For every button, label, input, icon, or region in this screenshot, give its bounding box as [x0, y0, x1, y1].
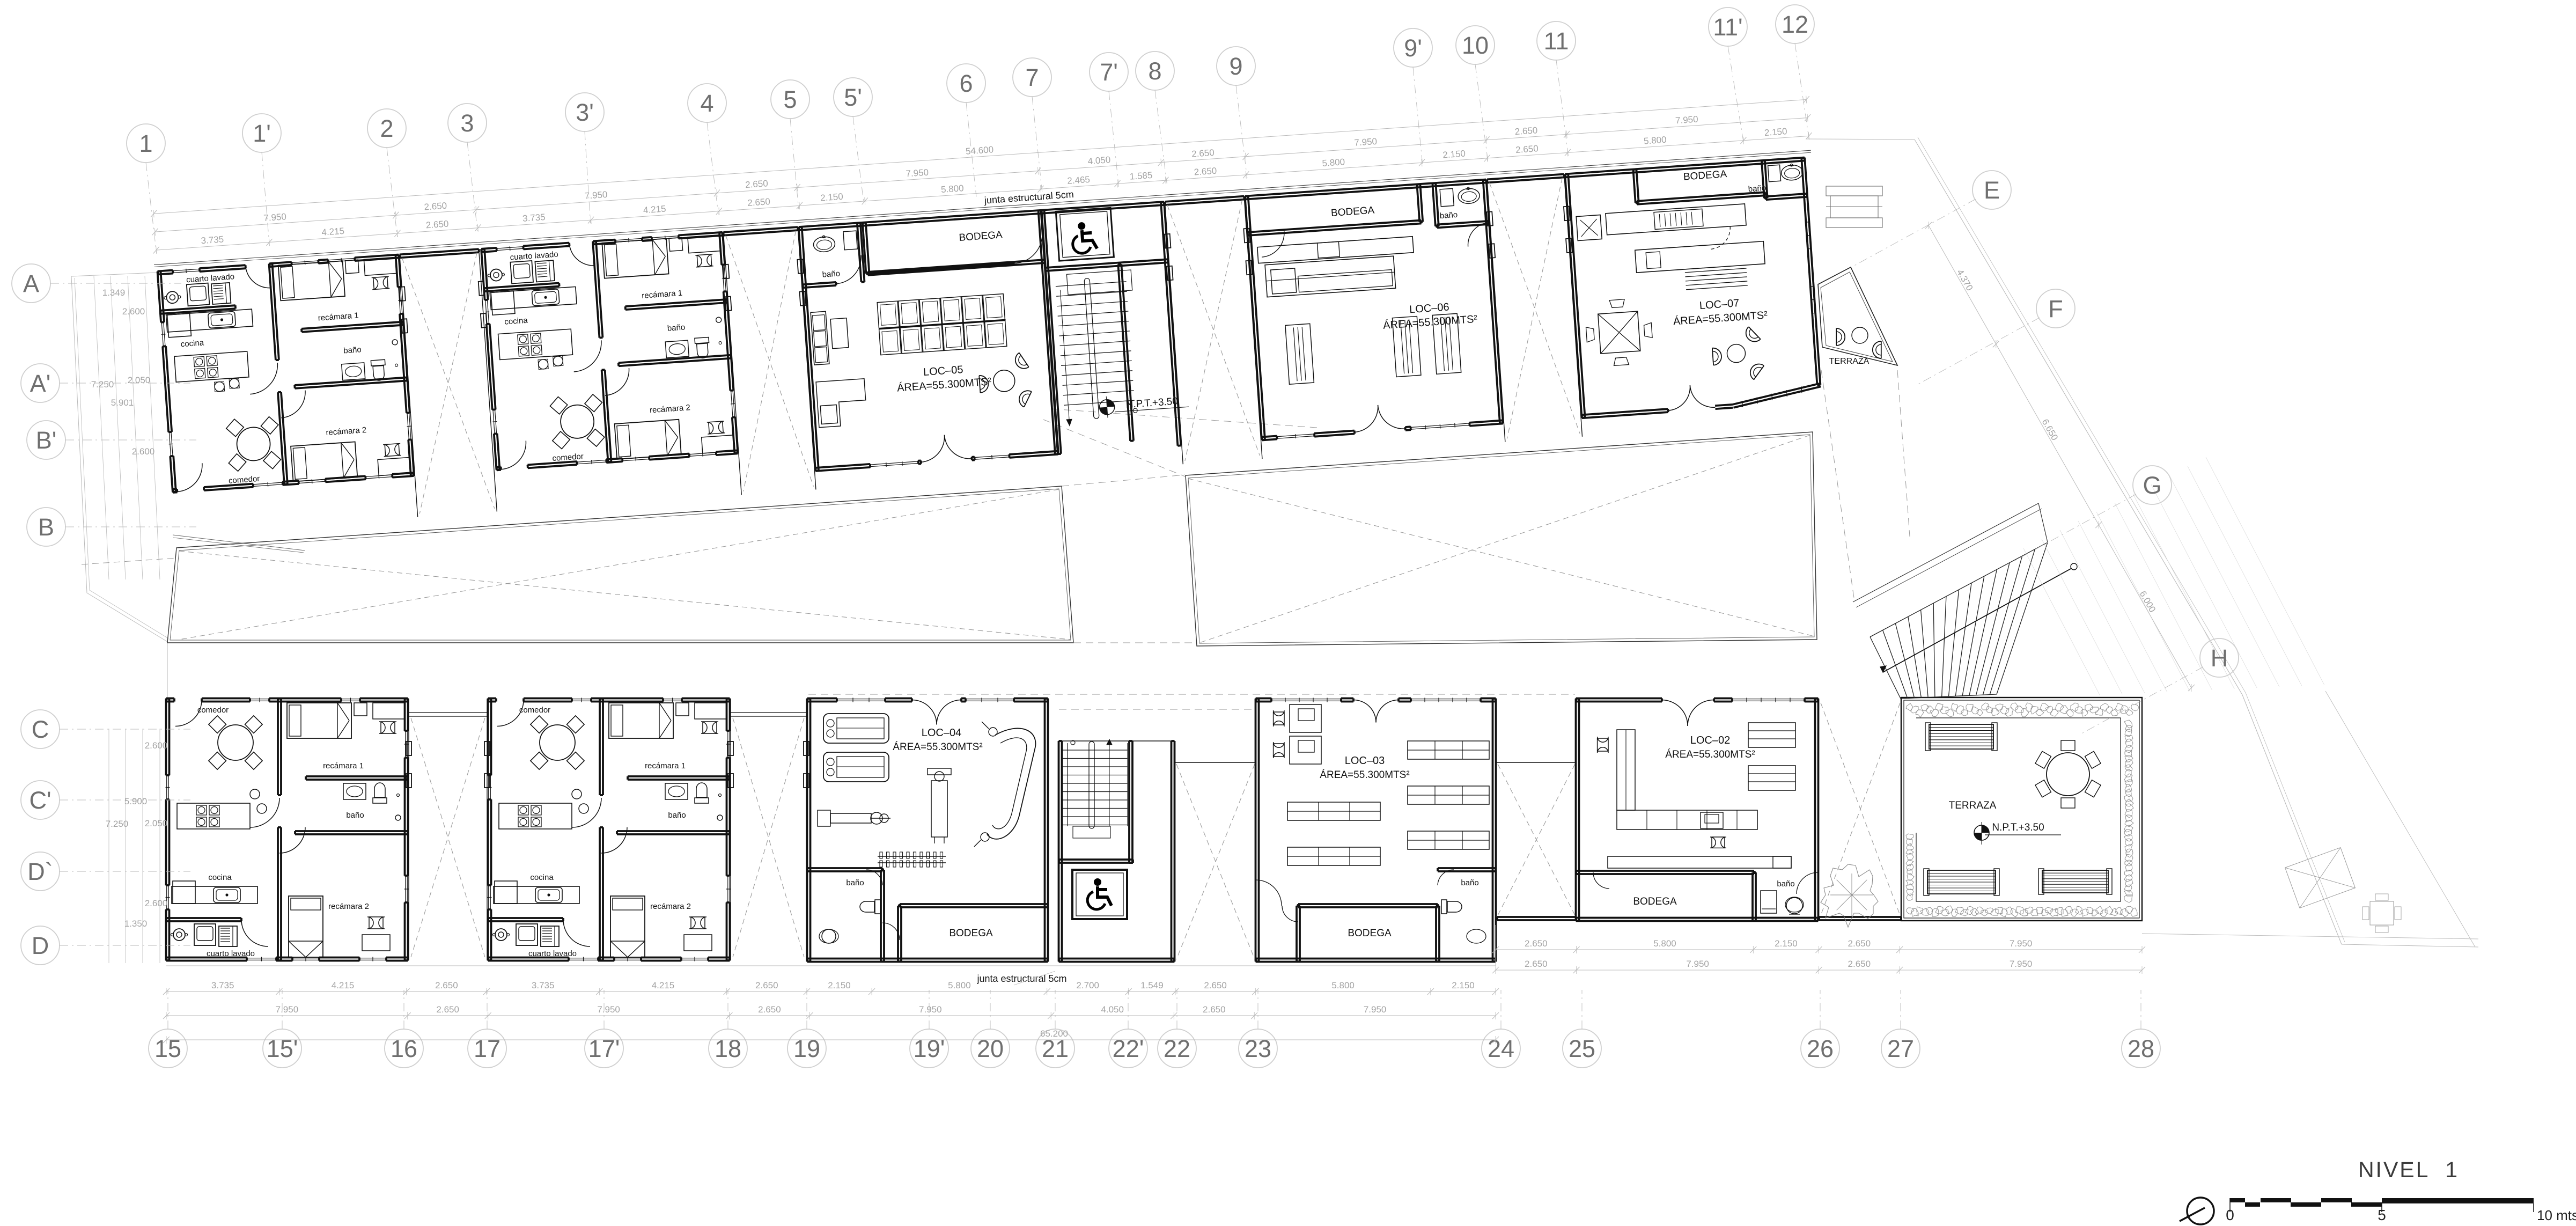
svg-text:1.350: 1.350 — [124, 919, 148, 929]
svg-text:9: 9 — [1229, 53, 1242, 80]
svg-text:2.650: 2.650 — [1203, 1004, 1226, 1015]
svg-text:C': C' — [29, 787, 51, 814]
svg-text:10 mts.: 10 mts. — [2537, 1207, 2576, 1223]
svg-text:0: 0 — [2226, 1207, 2234, 1223]
svg-text:recámara 2: recámara 2 — [650, 902, 691, 911]
svg-text:C: C — [32, 716, 49, 743]
svg-text:2.650: 2.650 — [424, 201, 447, 212]
svg-text:LOC–03: LOC–03 — [1345, 755, 1385, 767]
svg-text:2.600: 2.600 — [145, 898, 168, 908]
svg-text:E: E — [1984, 177, 2000, 204]
svg-text:cocina: cocina — [530, 873, 554, 882]
svg-text:5.800: 5.800 — [1653, 938, 1676, 949]
svg-text:7.950: 7.950 — [2010, 938, 2033, 949]
svg-text:2.150: 2.150 — [820, 192, 844, 203]
svg-text:8: 8 — [1148, 57, 1161, 85]
svg-text:7.950: 7.950 — [2010, 959, 2033, 969]
svg-text:7': 7' — [1100, 58, 1118, 86]
svg-text:baño: baño — [822, 269, 840, 279]
svg-text:1: 1 — [139, 130, 152, 157]
svg-text:ÁREA=55.300MTS²: ÁREA=55.300MTS² — [1665, 749, 1755, 760]
svg-text:2.150: 2.150 — [1775, 938, 1798, 949]
svg-text:11: 11 — [1544, 27, 1569, 55]
svg-text:3.735: 3.735 — [522, 212, 546, 224]
svg-text:7.950: 7.950 — [1686, 959, 1709, 969]
svg-text:4.215: 4.215 — [332, 980, 355, 990]
svg-text:BODEGA: BODEGA — [1348, 928, 1392, 939]
svg-text:4.215: 4.215 — [643, 203, 666, 215]
svg-text:2.050: 2.050 — [128, 375, 151, 385]
svg-text:17: 17 — [474, 1035, 501, 1062]
svg-text:2.150: 2.150 — [828, 980, 851, 990]
svg-text:NIVEL 1: NIVEL 1 — [2358, 1157, 2459, 1182]
svg-text:G: G — [2143, 472, 2161, 499]
svg-text:5.800: 5.800 — [1331, 980, 1355, 990]
svg-text:3.735: 3.735 — [201, 234, 224, 246]
svg-text:5.800: 5.800 — [1322, 157, 1345, 168]
svg-text:baño: baño — [1748, 183, 1766, 194]
svg-text:2.650: 2.650 — [1848, 959, 1871, 969]
svg-text:A': A' — [30, 370, 51, 397]
svg-text:TERRAZA: TERRAZA — [1949, 800, 1997, 811]
svg-text:7.250: 7.250 — [91, 379, 114, 390]
svg-text:18: 18 — [715, 1035, 741, 1062]
svg-text:comedor: comedor — [197, 706, 229, 715]
svg-text:baño: baño — [1439, 210, 1458, 221]
svg-text:27: 27 — [1887, 1035, 1914, 1062]
svg-text:21: 21 — [1042, 1035, 1069, 1062]
svg-text:3.735: 3.735 — [211, 980, 234, 990]
svg-text:cocina: cocina — [504, 316, 528, 327]
svg-text:baño: baño — [846, 878, 864, 887]
svg-text:cocina: cocina — [208, 873, 232, 882]
svg-text:2.650: 2.650 — [747, 196, 771, 208]
svg-text:baño: baño — [1461, 878, 1478, 887]
svg-text:5.800: 5.800 — [1643, 135, 1667, 146]
svg-text:7.950: 7.950 — [597, 1004, 620, 1015]
svg-text:19': 19' — [914, 1035, 945, 1062]
svg-text:2.650: 2.650 — [745, 178, 769, 190]
svg-text:BODEGA: BODEGA — [1633, 896, 1677, 907]
svg-text:B': B' — [36, 427, 57, 454]
svg-text:1.349: 1.349 — [102, 288, 126, 298]
svg-text:9': 9' — [1404, 34, 1422, 62]
svg-text:7.950: 7.950 — [906, 167, 929, 179]
svg-text:28: 28 — [2128, 1035, 2154, 1062]
svg-text:F: F — [2048, 295, 2063, 322]
svg-text:2.465: 2.465 — [1067, 174, 1091, 186]
svg-text:3: 3 — [460, 109, 474, 137]
svg-text:10: 10 — [1462, 32, 1489, 59]
svg-text:1': 1' — [253, 120, 271, 147]
svg-text:cuarto lavado: cuarto lavado — [528, 949, 577, 958]
svg-text:16: 16 — [391, 1035, 417, 1062]
svg-text:2.650: 2.650 — [1515, 143, 1539, 155]
svg-text:5': 5' — [844, 84, 862, 111]
svg-text:2.700: 2.700 — [1076, 980, 1099, 990]
svg-text:7.950: 7.950 — [919, 1004, 942, 1015]
svg-text:comedor: comedor — [519, 706, 550, 715]
svg-text:2.650: 2.650 — [1204, 980, 1227, 990]
svg-text:recámara 1: recámara 1 — [323, 761, 364, 770]
svg-text:cuarto lavado: cuarto lavado — [207, 949, 255, 958]
svg-text:24: 24 — [1488, 1035, 1514, 1062]
svg-text:baño: baño — [343, 345, 362, 355]
svg-text:2.600: 2.600 — [122, 306, 145, 317]
svg-text:recámara 2: recámara 2 — [328, 902, 369, 911]
svg-text:1.585: 1.585 — [1129, 170, 1153, 182]
svg-text:12: 12 — [1782, 11, 1808, 38]
svg-text:11': 11' — [1713, 13, 1742, 41]
svg-text:2.650: 2.650 — [755, 980, 778, 990]
svg-text:baño: baño — [1777, 879, 1794, 889]
svg-text:2.650: 2.650 — [436, 1004, 459, 1015]
svg-text:cocina: cocina — [180, 338, 204, 349]
svg-text:BODEGA: BODEGA — [949, 928, 993, 939]
svg-text:22: 22 — [1164, 1035, 1190, 1062]
svg-text:3': 3' — [576, 99, 594, 126]
svg-text:15': 15' — [267, 1035, 298, 1062]
svg-text:5: 5 — [2378, 1207, 2386, 1223]
svg-text:2.650: 2.650 — [1191, 148, 1215, 159]
svg-text:2.150: 2.150 — [1442, 149, 1466, 160]
svg-text:7.950: 7.950 — [1675, 114, 1698, 126]
svg-text:2.150: 2.150 — [1764, 126, 1787, 138]
svg-text:2.650: 2.650 — [1848, 938, 1871, 949]
svg-text:D`: D` — [27, 858, 53, 885]
svg-text:2.650: 2.650 — [435, 980, 458, 990]
svg-text:4.050: 4.050 — [1101, 1004, 1124, 1015]
svg-text:1.549: 1.549 — [1140, 980, 1164, 990]
svg-text:4.215: 4.215 — [321, 226, 345, 238]
svg-text:2.650: 2.650 — [758, 1004, 781, 1015]
svg-text:7.950: 7.950 — [1354, 136, 1378, 148]
svg-text:TERRAZA: TERRAZA — [1829, 357, 1870, 366]
svg-text:3.735: 3.735 — [532, 980, 555, 990]
svg-text:23: 23 — [1245, 1035, 1271, 1062]
svg-text:A: A — [23, 270, 39, 297]
svg-text:2: 2 — [380, 115, 393, 142]
svg-text:2.050: 2.050 — [145, 818, 168, 828]
svg-text:recámara 1: recámara 1 — [645, 761, 686, 770]
svg-text:7.250: 7.250 — [106, 819, 129, 829]
svg-text:4: 4 — [700, 90, 713, 117]
svg-text:2.650: 2.650 — [1514, 125, 1538, 137]
svg-text:6: 6 — [959, 70, 973, 97]
svg-text:4.215: 4.215 — [652, 980, 675, 990]
svg-text:5.800: 5.800 — [940, 183, 964, 195]
svg-text:2.600: 2.600 — [132, 446, 155, 457]
svg-text:15: 15 — [154, 1035, 181, 1062]
svg-text:ÁREA=55.300MTS²: ÁREA=55.300MTS² — [1320, 769, 1409, 781]
svg-text:LOC–02: LOC–02 — [1690, 735, 1731, 746]
svg-text:7: 7 — [1025, 64, 1039, 91]
svg-text:7.950: 7.950 — [276, 1004, 299, 1015]
svg-text:baño: baño — [346, 811, 364, 820]
svg-text:2.150: 2.150 — [1452, 980, 1475, 990]
svg-text:5.900: 5.900 — [124, 796, 148, 806]
svg-text:7.950: 7.950 — [1364, 1004, 1387, 1015]
svg-text:22': 22' — [1113, 1035, 1144, 1062]
svg-text:26: 26 — [1807, 1035, 1834, 1062]
svg-text:baño: baño — [667, 323, 685, 333]
svg-text:N.P.T.+3.50: N.P.T.+3.50 — [1992, 822, 2044, 833]
svg-text:20: 20 — [977, 1035, 1004, 1062]
svg-text:65.200: 65.200 — [1040, 1029, 1068, 1039]
svg-text:2.600: 2.600 — [145, 740, 168, 751]
svg-text:ÁREA=55.300MTS²: ÁREA=55.300MTS² — [893, 742, 982, 753]
svg-text:2.650: 2.650 — [1525, 938, 1548, 949]
svg-text:4.050: 4.050 — [1087, 155, 1111, 166]
svg-text:H: H — [2211, 644, 2228, 672]
svg-text:2.650: 2.650 — [425, 218, 449, 230]
svg-text:7.950: 7.950 — [584, 189, 608, 201]
svg-text:D: D — [32, 932, 49, 959]
svg-text:25: 25 — [1569, 1035, 1595, 1062]
svg-text:LOC–04: LOC–04 — [922, 727, 962, 739]
svg-text:17': 17' — [588, 1035, 620, 1062]
svg-text:B: B — [38, 513, 54, 541]
svg-text:5: 5 — [783, 86, 797, 113]
svg-text:19: 19 — [793, 1035, 820, 1062]
svg-text:2.650: 2.650 — [1194, 166, 1217, 178]
svg-text:5.901: 5.901 — [111, 398, 134, 408]
svg-text:baño: baño — [668, 811, 686, 820]
svg-text:5.800: 5.800 — [948, 980, 971, 990]
svg-text:54.600: 54.600 — [966, 144, 994, 157]
svg-text:2.650: 2.650 — [1525, 959, 1548, 969]
